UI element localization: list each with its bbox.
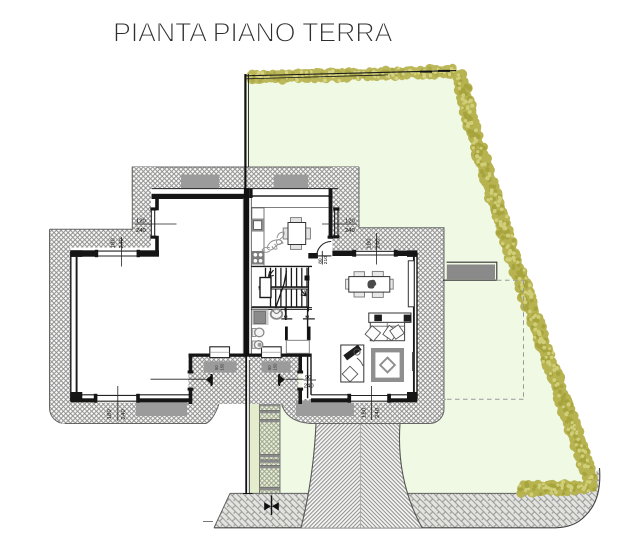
svg-text:50: 50 <box>267 365 272 370</box>
svg-text:240: 240 <box>345 228 356 234</box>
svg-text:180: 180 <box>110 238 116 249</box>
svg-text:240: 240 <box>375 407 381 418</box>
svg-text:180: 180 <box>361 407 367 418</box>
svg-text:210: 210 <box>323 256 329 264</box>
svg-text:180: 180 <box>367 238 373 249</box>
svg-text:120: 120 <box>136 219 147 225</box>
svg-text:240: 240 <box>375 238 381 249</box>
svg-text:150: 150 <box>273 363 278 371</box>
svg-text:150: 150 <box>220 363 225 371</box>
svg-text:180: 180 <box>107 409 113 420</box>
svg-text:50: 50 <box>214 365 219 370</box>
svg-text:240: 240 <box>304 384 315 390</box>
svg-text:120: 120 <box>345 219 356 225</box>
svg-text:90: 90 <box>305 375 312 381</box>
svg-text:240: 240 <box>121 409 127 420</box>
svg-text:240: 240 <box>119 238 125 249</box>
svg-text:80: 80 <box>318 258 324 264</box>
svg-text:240: 240 <box>136 228 147 234</box>
svg-text:PIANTA PIANO TERRA: PIANTA PIANO TERRA <box>113 18 394 48</box>
